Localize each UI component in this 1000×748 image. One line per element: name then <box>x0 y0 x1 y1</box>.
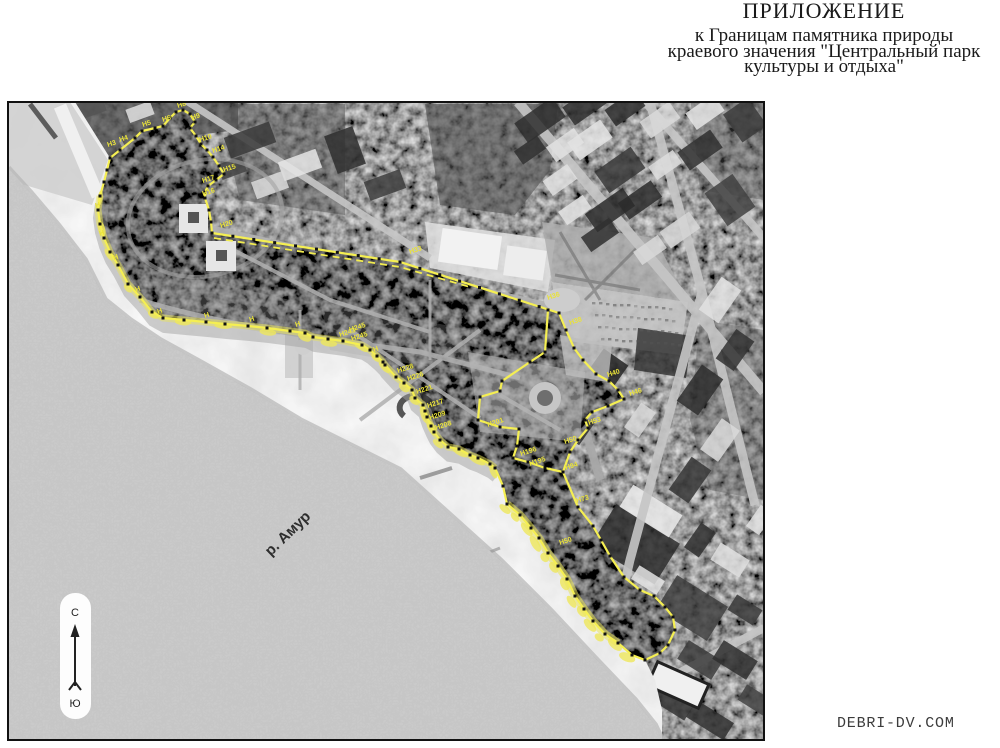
svg-text:С: С <box>71 607 79 619</box>
svg-text:Ю: Ю <box>69 698 80 710</box>
